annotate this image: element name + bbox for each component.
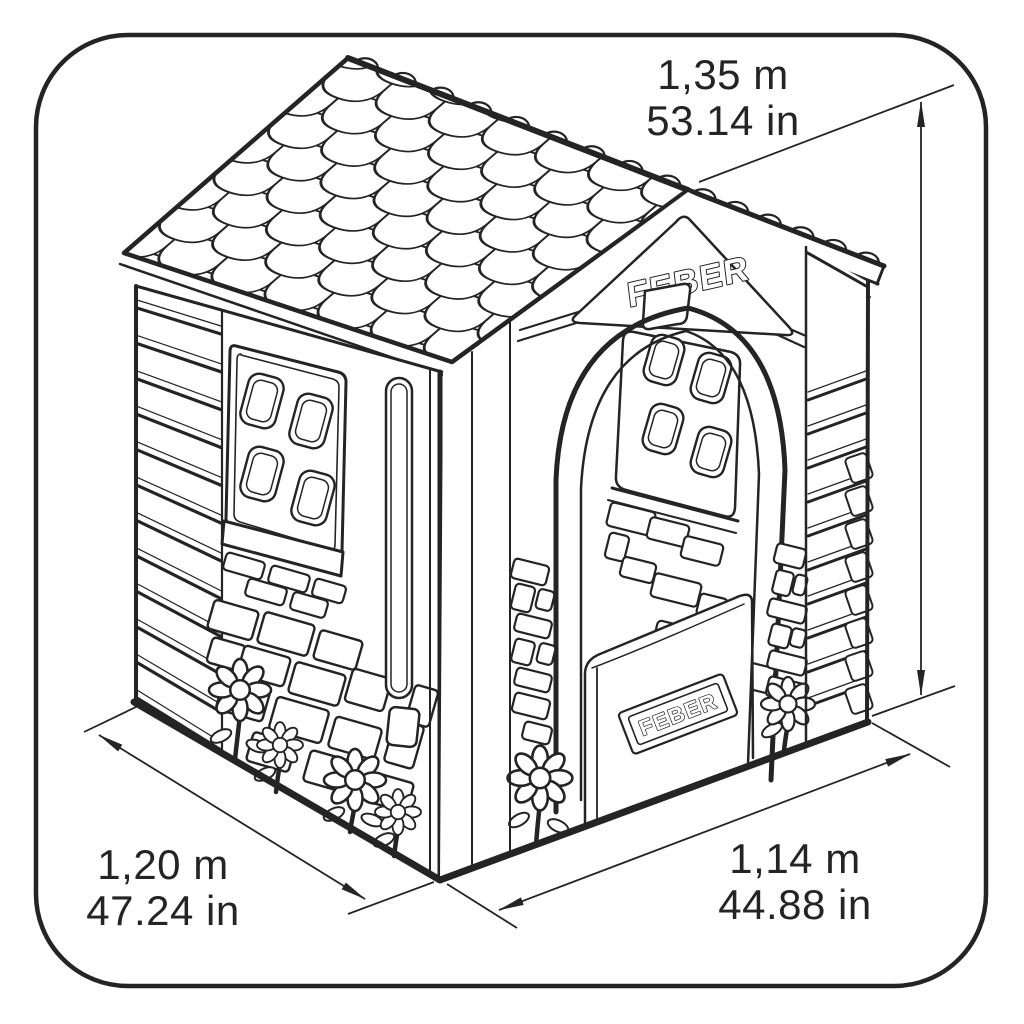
height-extension-bottom [872,686,955,716]
dimension-base-front-metric: 1,14 m [645,836,945,882]
dimension-height-label: 1,35 m 53.14 in [573,52,873,144]
dimension-height-metric: 1,35 m [573,52,873,98]
dimension-base-front-imperial: 44.88 in [645,882,945,928]
dimension-base-left-label: 1,20 m 47.24 in [13,842,313,934]
base-left-extension-1 [84,706,138,732]
base-front-extension-1 [447,884,517,928]
left-wall-window [222,346,346,576]
dimension-base-left-metric: 1,20 m [13,842,313,888]
dimension-base-front-label: 1,14 m 44.88 in [645,836,945,928]
diagram-page: FEBER [0,0,1024,1024]
base-left-extension-2 [348,882,434,914]
base-front-extension-2 [872,723,950,767]
dimension-height-imperial: 53.14 in [573,98,873,144]
dimension-base-left-imperial: 47.24 in [13,888,313,934]
right-side-wall [806,247,874,743]
